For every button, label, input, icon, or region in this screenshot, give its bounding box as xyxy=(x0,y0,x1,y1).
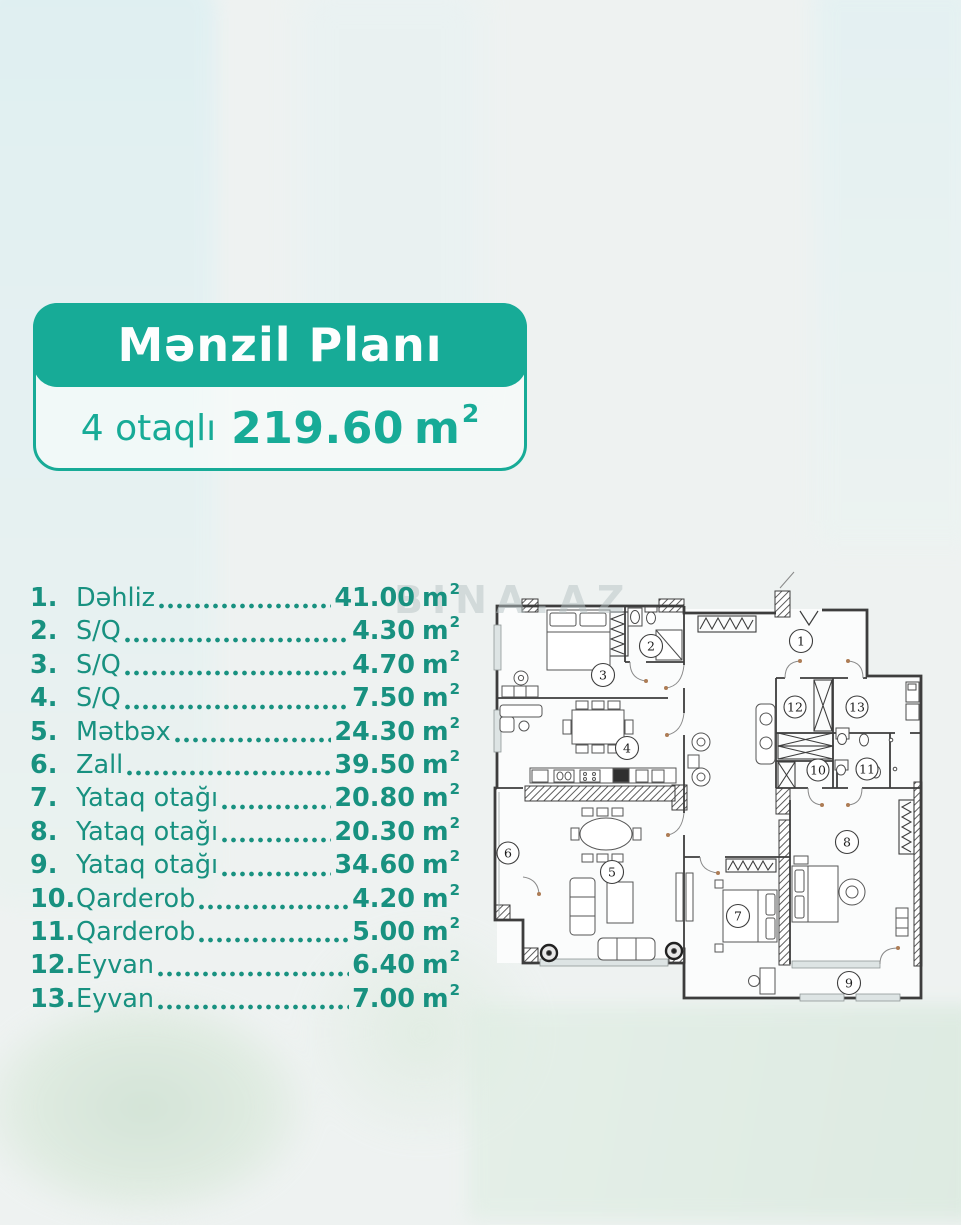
room-label: 6 xyxy=(497,842,519,864)
room-label: 12 xyxy=(784,696,806,718)
list-item-area-unit: m xyxy=(422,716,449,749)
room-count-label: 4 otaqlı xyxy=(81,408,216,449)
list-item-area-value: 4.30 xyxy=(352,615,415,648)
room-label: 11 xyxy=(856,758,878,780)
list-item-number: 3. xyxy=(30,649,76,682)
list-item-area-value: 20.30 xyxy=(334,816,415,849)
list-item-area-unit-sup: 2 xyxy=(450,707,460,740)
room-number: 3 xyxy=(599,668,607,683)
dotted-leader xyxy=(220,816,331,849)
room-label: 9 xyxy=(838,972,861,995)
list-item-room-name: Mətbəx xyxy=(76,716,171,749)
list-item-area-value: 39.50 xyxy=(334,749,415,782)
dotted-leader xyxy=(125,749,331,782)
list-item-area-unit: m xyxy=(422,916,449,949)
list-item-area-unit-sup: 2 xyxy=(450,573,460,606)
floor-plan: 1 2 3 4 5 6 7 8 9 10 11 12 13 xyxy=(470,570,940,1030)
list-item-area-value: 5.00 xyxy=(352,916,415,949)
dotted-leader xyxy=(156,983,349,1016)
list-item: 10. Qarderob 4.20 m 2 xyxy=(30,883,460,916)
list-item-area-unit-sup: 2 xyxy=(450,606,460,639)
list-item-area-value: 7.50 xyxy=(352,682,415,715)
list-item-area-value: 6.40 xyxy=(352,949,415,982)
list-item-area-unit: m xyxy=(422,816,449,849)
list-item-number: 9. xyxy=(30,849,76,882)
room-label: 3 xyxy=(592,664,615,687)
room-label: 2 xyxy=(640,635,663,658)
list-item-area-unit: m xyxy=(422,649,449,682)
list-item-area-unit-sup: 2 xyxy=(450,740,460,773)
list-item: 8. Yataq otağı 20.30 m 2 xyxy=(30,816,460,849)
room-number: 4 xyxy=(623,741,631,756)
dotted-leader xyxy=(197,883,349,916)
dotted-leader xyxy=(123,615,349,648)
list-item: 11. Qarderob 5.00 m 2 xyxy=(30,916,460,949)
list-item-area-unit: m xyxy=(422,883,449,916)
list-item-room-name: Yataq otağı xyxy=(76,849,218,882)
room-label: 5 xyxy=(601,861,624,884)
room-number: 10 xyxy=(810,763,826,778)
total-area-unit-sup: 2 xyxy=(462,399,479,428)
list-item-room-name: Yataq otağı xyxy=(76,782,218,815)
list-item-number: 10. xyxy=(30,883,76,916)
list-item-number: 8. xyxy=(30,816,76,849)
list-item: 9. Yataq otağı 34.60 m 2 xyxy=(30,849,460,882)
list-item: 4. S/Q 7.50 m 2 xyxy=(30,682,460,715)
dotted-leader xyxy=(123,682,349,715)
room-label: 4 xyxy=(616,737,639,760)
list-item-area-unit: m xyxy=(422,615,449,648)
room-number: 5 xyxy=(608,865,616,880)
list-item-area-value: 41.00 xyxy=(334,582,415,615)
list-item-room-name: Yataq otağı xyxy=(76,816,218,849)
dotted-leader xyxy=(220,849,331,882)
list-item: 13. Eyvan 7.00 m 2 xyxy=(30,983,460,1016)
apartment-summary: 4 otaqlı 219.60 m 2 xyxy=(36,388,524,468)
list-item-area-unit-sup: 2 xyxy=(450,807,460,840)
list-item-number: 5. xyxy=(30,716,76,749)
list-item: 7. Yataq otağı 20.80 m 2 xyxy=(30,782,460,815)
room-number: 1 xyxy=(797,634,805,649)
list-item-room-name: S/Q xyxy=(76,615,121,648)
list-item-area-value: 20.80 xyxy=(334,782,415,815)
list-item-area-unit: m xyxy=(422,849,449,882)
list-item-area-unit-sup: 2 xyxy=(450,673,460,706)
background-photo-building-right xyxy=(815,0,961,546)
list-item-number: 7. xyxy=(30,782,76,815)
list-item-number: 11. xyxy=(30,916,76,949)
list-item: 12. Eyvan 6.40 m 2 xyxy=(30,949,460,982)
list-item-area-value: 4.20 xyxy=(352,883,415,916)
header-card: Mənzil Planı 4 otaqlı 219.60 m 2 xyxy=(33,303,527,471)
list-item-area-unit-sup: 2 xyxy=(450,940,460,973)
room-number: 7 xyxy=(734,909,742,924)
list-item-area-value: 24.30 xyxy=(334,716,415,749)
list-item-room-name: Qarderob xyxy=(76,916,195,949)
list-item-area-unit: m xyxy=(422,682,449,715)
list-item-area-value: 7.00 xyxy=(352,983,415,1016)
room-number: 12 xyxy=(787,700,803,715)
list-item: 1. Dəhliz 41.00 m 2 xyxy=(30,582,460,615)
list-item-area-unit-sup: 2 xyxy=(450,640,460,673)
room-number: 2 xyxy=(647,639,655,654)
list-item-room-name: Zall xyxy=(76,749,123,782)
room-number: 13 xyxy=(849,700,865,715)
list-item-room-name: Qarderob xyxy=(76,883,195,916)
list-item-area-unit-sup: 2 xyxy=(450,773,460,806)
list-item-number: 6. xyxy=(30,749,76,782)
room-label: 10 xyxy=(807,759,829,781)
list-item-number: 1. xyxy=(30,582,76,615)
list-item-area-value: 4.70 xyxy=(352,649,415,682)
list-item-room-name: S/Q xyxy=(76,682,121,715)
list-item-room-name: Dəhliz xyxy=(76,582,155,615)
list-item-number: 12. xyxy=(30,949,76,982)
list-item-area-unit: m xyxy=(422,949,449,982)
dotted-leader xyxy=(123,649,349,682)
room-number: 6 xyxy=(504,846,512,861)
dotted-leader xyxy=(173,716,332,749)
list-item: 3. S/Q 4.70 m 2 xyxy=(30,649,460,682)
total-area-unit: m xyxy=(414,403,460,454)
list-item-number: 13. xyxy=(30,983,76,1016)
list-item-area-unit-sup: 2 xyxy=(450,974,460,1007)
list-item: 5. Mətbəx 24.30 m 2 xyxy=(30,716,460,749)
background-photo-glass-building xyxy=(468,1005,961,1220)
list-item-room-name: S/Q xyxy=(76,649,121,682)
room-number: 11 xyxy=(859,762,875,777)
list-item-area-unit: m xyxy=(422,983,449,1016)
room-label: 7 xyxy=(727,905,750,928)
dotted-leader xyxy=(220,782,331,815)
list-item-area-unit-sup: 2 xyxy=(450,874,460,907)
dotted-leader xyxy=(157,582,331,615)
dotted-leader xyxy=(197,916,349,949)
room-list: 1. Dəhliz 41.00 m 2 2. S/Q 4.30 m 2 3. S… xyxy=(30,582,460,1016)
room-label: 8 xyxy=(836,831,859,854)
list-item-area-unit: m xyxy=(422,582,449,615)
list-item: 2. S/Q 4.30 m 2 xyxy=(30,615,460,648)
list-item-area-unit: m xyxy=(422,749,449,782)
page-title: Mənzil Planı xyxy=(117,318,442,372)
room-number: 8 xyxy=(843,835,851,850)
list-item-area-unit-sup: 2 xyxy=(450,840,460,873)
room-number: 9 xyxy=(845,976,853,991)
list-item: 6. Zall 39.50 m 2 xyxy=(30,749,460,782)
total-area-value: 219.60 xyxy=(231,403,404,454)
room-label: 13 xyxy=(846,696,868,718)
list-item-number: 2. xyxy=(30,615,76,648)
list-item-area-unit: m xyxy=(422,782,449,815)
list-item-number: 4. xyxy=(30,682,76,715)
header-card-title-bar: Mənzil Planı xyxy=(33,303,527,387)
list-item-area-value: 34.60 xyxy=(334,849,415,882)
dotted-leader xyxy=(156,949,349,982)
list-item-area-unit-sup: 2 xyxy=(450,907,460,940)
list-item-room-name: Eyvan xyxy=(76,949,154,982)
list-item-room-name: Eyvan xyxy=(76,983,154,1016)
room-label: 1 xyxy=(790,630,813,653)
